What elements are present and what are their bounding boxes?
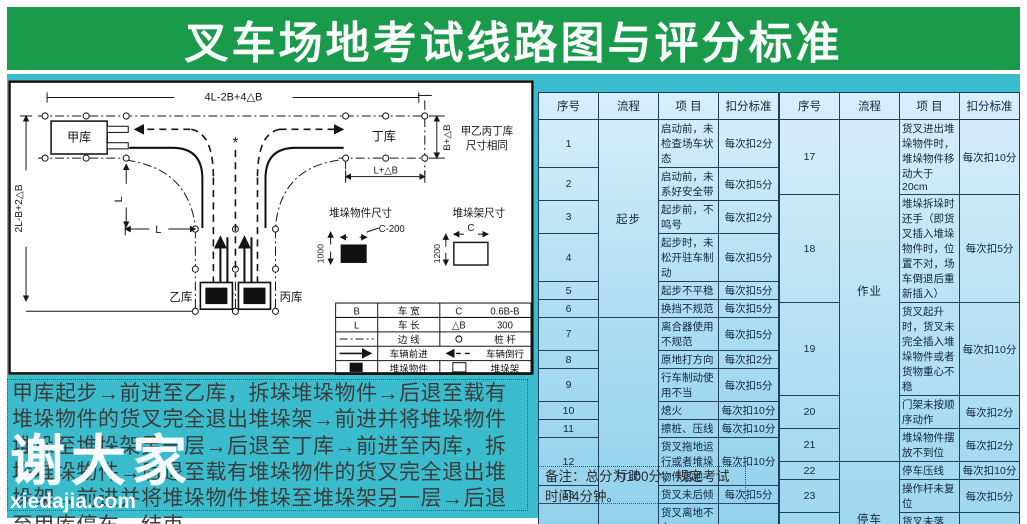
depot-d-label: 丁库 [372, 128, 396, 143]
cell-pen: 每次扣5分 [719, 300, 779, 318]
cell-stage: 作业 [840, 120, 900, 462]
cell-no: 10 [539, 402, 599, 420]
course-diagram: 4L-2B+4△B 2L-B+2△B [8, 80, 534, 375]
legend-r2c1: L [354, 321, 360, 332]
legend-r4c4: 车辆倒行 [486, 348, 524, 360]
table-row: 17作业货叉进出堆垛物件时，堆垛物件移动大于20cm每次扣10分 [780, 120, 1020, 195]
table-row: 24货叉未落地、未拉紧驻车制动、未切断电源每次扣5分 [780, 513, 1020, 524]
column-header: 项 目 [900, 93, 960, 120]
legend-r3c4: 桩 杆 [494, 334, 516, 346]
cell-item: 起步不平稳 [659, 282, 719, 300]
cell-item: 离合器使用不规范 [659, 318, 719, 351]
l-plus-dimension-label: L+△B [373, 165, 397, 176]
legend-r5c2: 堆垛物件 [390, 363, 428, 375]
table-row: 6换挡不规范每次扣5分 [539, 300, 779, 318]
legend-r2c4: 300 [497, 321, 513, 332]
table-row: 4起步时，未松开驻车制动每次扣5分 [539, 234, 779, 282]
table-row: 2启动前，未系好安全带每次扣5分 [539, 168, 779, 201]
table-row: 14货叉离地不在 20cm～30cm范围内每次扣5分 [539, 504, 779, 524]
score-tables: 序号流程项 目扣分标准1起步启动前，未检查场车状态每次扣2分2启动前，未系好安全… [538, 92, 1020, 460]
junction-star: * [233, 135, 239, 152]
cell-stage: 起步 [599, 120, 659, 318]
cell-item: 起步前，不鸣号 [659, 201, 719, 234]
table-row: 5起步不平稳每次扣5分 [539, 282, 779, 300]
cell-no: 1 [539, 120, 599, 168]
cell-pen: 每次扣2分 [960, 429, 1020, 462]
rack-size-title: 堆垛架尺寸 [453, 207, 506, 220]
cell-item: 熄火 [659, 402, 719, 420]
cell-no: 7 [539, 318, 599, 351]
table-row: 22停车停车压线每次扣10分 [780, 462, 1020, 480]
table-row: 9行车制动使用不当每次扣5分 [539, 369, 779, 402]
legend-r1c1: B [353, 306, 359, 317]
cell-item: 擦桩、压线 [659, 420, 719, 438]
table-row: 23操作杆未复位每次扣5分 [780, 480, 1020, 513]
depot-c-label: 丙库 [280, 290, 303, 304]
cell-item: 货叉离地不在 20cm～30cm范围内 [659, 504, 719, 524]
cell-no: 2 [539, 168, 599, 201]
cell-pen: 每次扣10分 [719, 420, 779, 438]
cell-no: 11 [539, 420, 599, 438]
cell-no: 23 [780, 480, 840, 513]
title-bar: 叉车场地考试线路图与评分标准 [7, 7, 1020, 70]
column-header: 序号 [780, 93, 840, 120]
stack-item-size-title: 堆垛物件尺寸 [329, 207, 392, 220]
cell-pen: 每次扣5分 [960, 195, 1020, 303]
legend-post-symbol [456, 336, 462, 342]
table-row: 10熄火每次扣10分 [539, 402, 779, 420]
legend-r1c3: C [455, 306, 462, 317]
column-header: 扣分标准 [960, 93, 1020, 120]
cell-no: 5 [539, 282, 599, 300]
legend-r3c2: 边 线 [398, 334, 420, 346]
l-dim-v-label: L [113, 196, 125, 202]
cell-item: 货叉未落地、未拉紧驻车制动、未切断电源 [900, 513, 960, 524]
legend-stack-item-symbol [350, 363, 363, 372]
cell-no: 24 [780, 513, 840, 524]
page-title: 叉车场地考试线路图与评分标准 [185, 7, 843, 71]
cell-stage: 停车 [840, 462, 900, 524]
cell-pen: 每次扣5分 [719, 168, 779, 201]
same-size-note-line1: 甲乙丙丁库 [461, 124, 514, 137]
column-header: 流程 [599, 93, 659, 120]
rack-width-label: C [467, 223, 474, 234]
stack-item-width-label: C-200 [379, 224, 405, 235]
cell-item: 行车制动使用不当 [659, 369, 719, 402]
score-table-left: 序号流程项 目扣分标准1起步启动前，未检查场车状态每次扣2分2启动前，未系好安全… [538, 92, 779, 524]
cell-pen: 每次扣5分 [719, 318, 779, 351]
cell-item: 堆垛拆垛时还手（即货叉插入堆垛物件时，位置不对，场车倒退后重新插入） [900, 195, 960, 303]
column-header: 扣分标准 [719, 93, 779, 120]
cell-pen: 每次扣5分 [960, 513, 1020, 524]
cell-pen: 每次扣2分 [719, 201, 779, 234]
cell-no: 20 [780, 396, 840, 429]
legend-rack-symbol [453, 363, 466, 372]
cell-no: 6 [539, 300, 599, 318]
cell-no: 4 [539, 234, 599, 282]
cell-item: 换挡不规范 [659, 300, 719, 318]
cell-pen: 每次扣10分 [960, 120, 1020, 195]
cell-pen: 每次扣5分 [719, 369, 779, 402]
cell-pen: 每次扣5分 [719, 504, 779, 524]
cell-no: 3 [539, 201, 599, 234]
cell-pen: 每次扣2分 [719, 351, 779, 369]
cell-no: 18 [780, 195, 840, 303]
score-table-right: 序号流程项 目扣分标准17作业货叉进出堆垛物件时，堆垛物件移动大于20cm每次扣… [779, 92, 1020, 524]
cell-pen: 每次扣5分 [719, 234, 779, 282]
column-header: 流程 [840, 93, 900, 120]
route-description: 甲库起步→前进至乙库，拆垛堆垛物件→后退至载有堆垛物件的货叉完全退出堆垛架→前进… [7, 379, 528, 511]
legend-r2c2: 车 长 [398, 320, 420, 332]
depot-a-label: 甲库 [67, 130, 91, 145]
cell-item: 操作杆未复位 [900, 480, 960, 513]
table-row: 18堆垛拆垛时还手（即货叉插入堆垛物件时，位置不对，场车倒退后重新插入）每次扣5… [780, 195, 1020, 303]
legend-r1c4: 0.6B-B [490, 306, 519, 317]
top-dimension-label: 4L-2B+4△B [205, 91, 263, 103]
cell-no: 9 [539, 369, 599, 402]
table-row: 3起步前，不鸣号每次扣2分 [539, 201, 779, 234]
table-row: 11擦桩、压线每次扣10分 [539, 420, 779, 438]
legend-r2c3: △B [452, 321, 466, 332]
cell-pen: 每次扣2分 [960, 396, 1020, 429]
cell-no: 19 [780, 303, 840, 396]
cell-item: 门架未按顺序动作 [900, 396, 960, 429]
b-plus-dimension-label: B+△B [442, 124, 453, 150]
cell-pen: 每次扣2分 [719, 120, 779, 168]
left-dimension-label: 2L-B+2△B [14, 184, 25, 232]
rack-height-label: 1200 [432, 244, 442, 264]
table-row: 1起步启动前，未检查场车状态每次扣2分 [539, 120, 779, 168]
l-dim-h-label: L [155, 224, 161, 236]
table-row: 21堆垛物件摆放不到位每次扣2分 [780, 429, 1020, 462]
column-header: 序号 [539, 93, 599, 120]
cell-no: 21 [780, 429, 840, 462]
note-box: 备注：总分为100分，规定考试时间4分钟。 [538, 466, 746, 504]
cell-pen: 每次扣10分 [719, 402, 779, 420]
table-row: 20门架未按顺序动作每次扣2分 [780, 396, 1020, 429]
poster: 叉车场地考试线路图与评分标准 4L-2B+4△B [0, 0, 1027, 524]
cell-no: 17 [780, 120, 840, 195]
cell-item: 货叉进出堆垛物件时，堆垛物件移动大于20cm [900, 120, 960, 195]
legend-r5c4: 堆垛架 [491, 364, 520, 375]
cell-no: 22 [780, 462, 840, 480]
cell-item: 起步时，未松开驻车制动 [659, 234, 719, 282]
cell-item: 启动前，未系好安全带 [659, 168, 719, 201]
same-size-note-line2: 尺寸相同 [466, 139, 508, 152]
cell-item: 停车压线 [900, 462, 960, 480]
cell-item: 堆垛物件摆放不到位 [900, 429, 960, 462]
cell-item: 货叉起升时，货叉未完全插入堆垛物件或者货物重心不稳 [900, 303, 960, 396]
cell-item: 原地打方向 [659, 351, 719, 369]
depot-b-label: 乙库 [169, 290, 192, 304]
table-row: 7行驶离合器使用不规范每次扣5分 [539, 318, 779, 351]
course-diagram-panel: 4L-2B+4△B 2L-B+2△B [8, 80, 534, 375]
table-row: 8原地打方向每次扣2分 [539, 351, 779, 369]
cell-no: 14 [539, 504, 599, 524]
table-row: 19货叉起升时，货叉未完全插入堆垛物件或者货物重心不稳每次扣10分 [780, 303, 1020, 396]
legend-r1c2: 车 宽 [398, 305, 420, 317]
cell-pen: 每次扣5分 [719, 282, 779, 300]
column-header: 项 目 [659, 93, 719, 120]
cell-no: 8 [539, 351, 599, 369]
stack-item-height-label: 1000 [316, 244, 326, 264]
cell-pen: 每次扣10分 [960, 462, 1020, 480]
legend-r4c2: 车辆前进 [390, 348, 428, 360]
cell-pen: 每次扣10分 [960, 303, 1020, 396]
cell-item: 启动前，未检查场车状态 [659, 120, 719, 168]
cell-pen: 每次扣5分 [960, 480, 1020, 513]
